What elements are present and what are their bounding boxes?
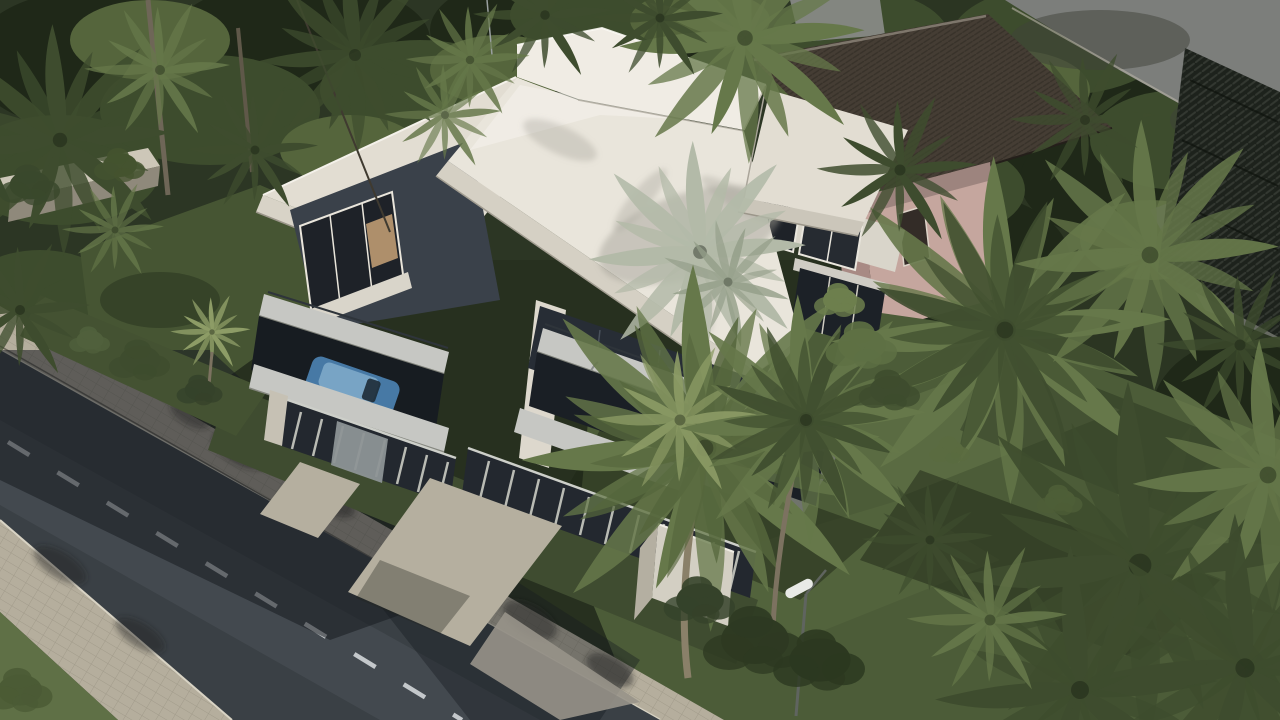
aerial-villa-render (0, 0, 1280, 720)
